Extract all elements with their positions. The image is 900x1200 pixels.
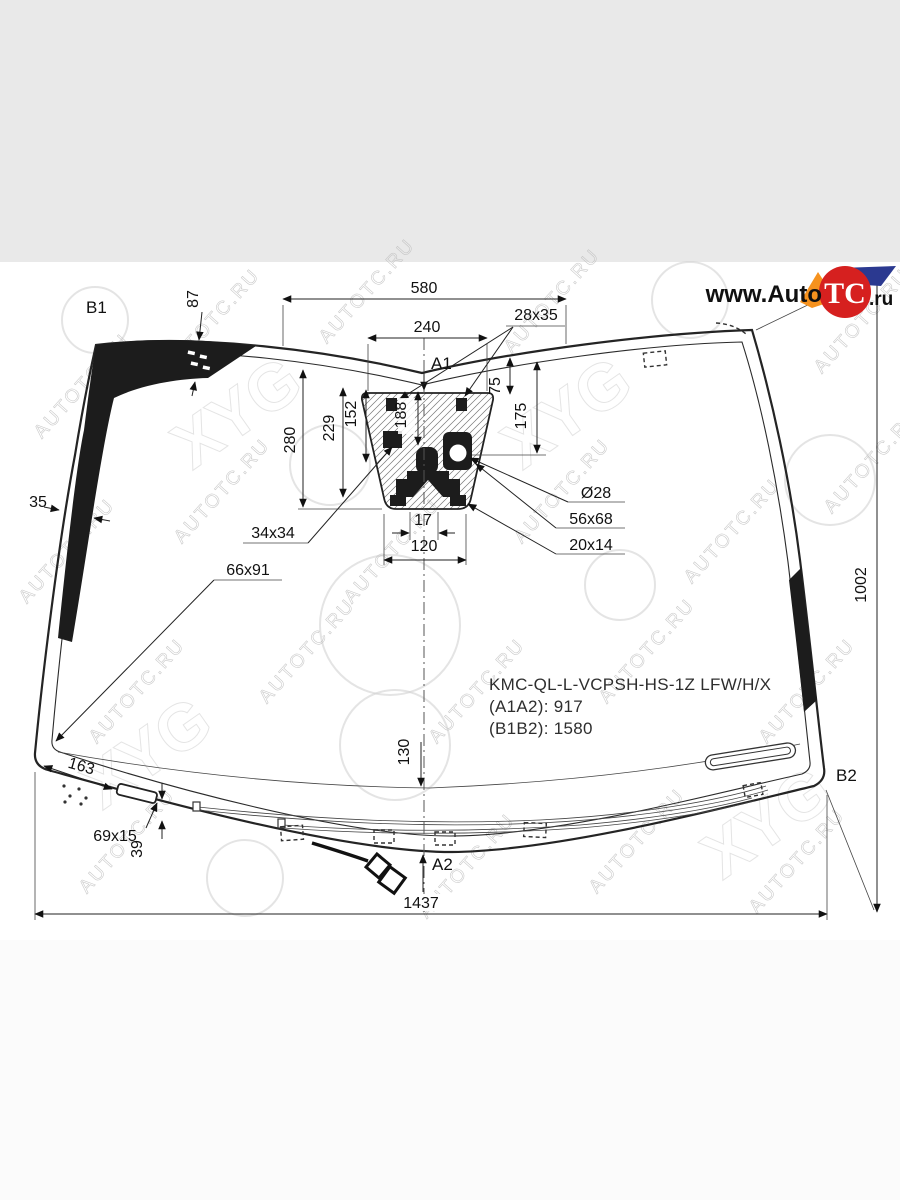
dim-87: 87 — [185, 290, 202, 308]
dim-175: 175 — [513, 403, 530, 430]
top-gray-band — [0, 0, 900, 262]
label-b1: B1 — [86, 298, 107, 317]
dim-34x34: 34x34 — [251, 525, 295, 542]
windshield-spec-page: XYG XYG XYG XYG AUTOTC.RU AUTOTC.RU AUTO… — [0, 0, 900, 1200]
logo-badge-text: TC — [824, 277, 866, 310]
dim-152: 152 — [343, 401, 360, 428]
label-b2: B2 — [836, 766, 857, 785]
dim-229: 229 — [321, 415, 338, 442]
dim-66x91: 66x91 — [226, 562, 270, 579]
dim-1437: 1437 — [403, 895, 439, 912]
bottom-band — [0, 940, 900, 1200]
dim-35: 35 — [29, 494, 47, 511]
label-a1: A1 — [431, 354, 452, 373]
background — [0, 0, 900, 1200]
hole-d28 — [450, 445, 467, 462]
dim-1002: 1002 — [853, 567, 870, 603]
busbar-clip — [193, 802, 200, 811]
dim-d28: Ø28 — [581, 485, 611, 502]
dim-130: 130 — [396, 739, 413, 766]
part-code: KMC-QL-L-VCPSH-HS-1Z LFW/H/X — [489, 675, 771, 694]
part-b1b2: (B1B2): 1580 — [489, 719, 593, 738]
foot-20x14-right — [450, 495, 466, 506]
dim-28x35: 28x35 — [514, 307, 558, 324]
dim-188: 188 — [393, 402, 410, 429]
rain-sensor — [416, 447, 438, 474]
part-a1a2: (A1A2): 917 — [489, 697, 583, 716]
dim-56x68: 56x68 — [569, 511, 613, 528]
dim-75: 75 — [487, 377, 504, 395]
dim-120: 120 — [411, 538, 438, 555]
logo-www-text: www.Auto — [705, 281, 822, 308]
dim-17: 17 — [414, 512, 432, 529]
foot-20x14-left — [390, 495, 406, 506]
bracket-28x35-right — [456, 398, 467, 411]
dim-280: 280 — [282, 427, 299, 454]
dim-39: 39 — [129, 840, 146, 858]
label-a2: A2 — [432, 855, 453, 874]
technical-drawing: XYG XYG XYG XYG AUTOTC.RU AUTOTC.RU AUTO… — [0, 0, 900, 1200]
dim-580: 580 — [411, 280, 438, 297]
dim-240: 240 — [414, 319, 441, 336]
logo-ru-text: .ru — [869, 289, 893, 310]
dim-20x14: 20x14 — [569, 537, 613, 554]
